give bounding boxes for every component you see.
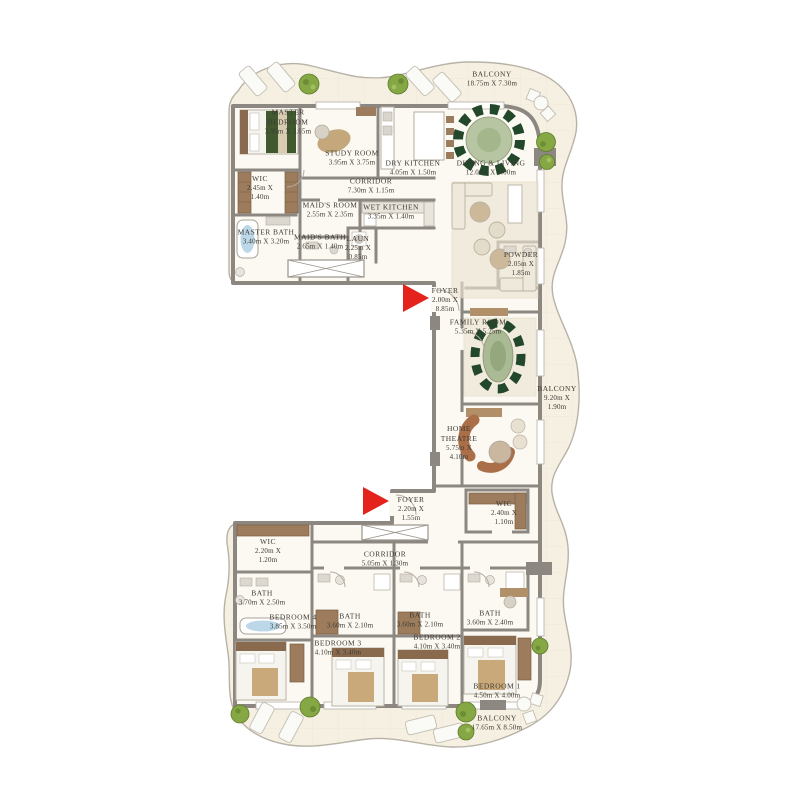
bed-icon [464,636,516,694]
floor-plan-graphic [0,0,800,800]
bed-icon [332,648,384,706]
bed-icon [236,642,286,700]
dining-table-icon [458,109,520,171]
floor-plan-canvas: BALCONY18.75m X 7.30m MASTER BEDROOM3.95… [0,0,800,800]
bed-icon [398,650,448,706]
kitchen-island-icon [381,107,454,169]
bed-icon [240,110,298,154]
entry-arrow-icon [403,284,429,312]
entry-arrow-icon [363,487,389,515]
